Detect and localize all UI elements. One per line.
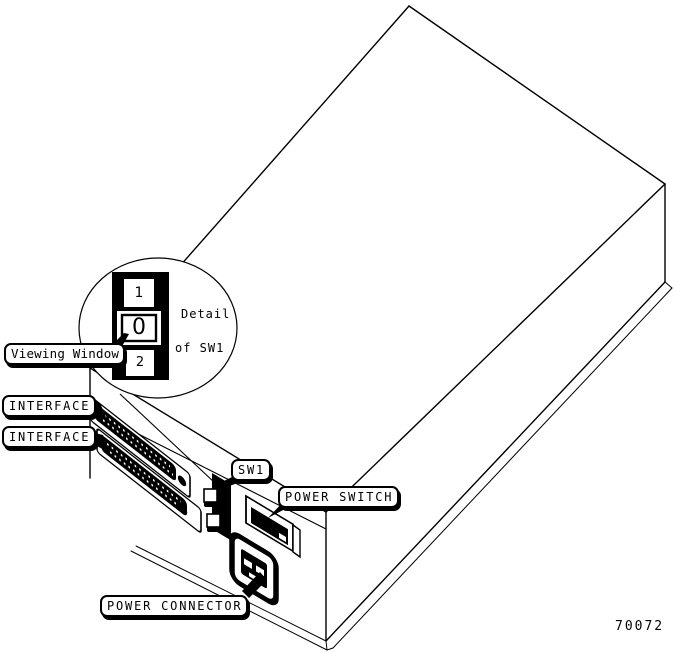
sw1-key-top [204,489,222,507]
edge-near-top-right [326,184,665,512]
callout-viewing-window: Viewing Window [4,343,125,365]
detail-position-2-digit: 2 [126,350,154,376]
figure-number: 70072 [615,619,664,634]
sw1-detail-inset [79,258,237,398]
callout-interface-bottom: INTERFACE [2,426,96,448]
sw1-key-bottom [207,514,225,532]
power-switch-side [293,525,300,557]
edge-bottom-right [326,282,665,641]
detail-caption-line-1: Detail [181,307,230,322]
hardware-rear-view-figure: Viewing Window INTERFACE INTERFACE SW1 P… [0,0,675,653]
rim-right-stub [665,282,672,288]
detail-caption-line-2: of SW1 [175,341,224,356]
line-art [0,0,675,653]
callout-power-switch: POWER SWITCH [278,486,399,508]
callout-interface-top: INTERFACE [2,395,96,417]
detail-position-1-digit: 1 [124,279,154,307]
callout-power-connector: POWER CONNECTOR [100,595,248,617]
detail-position-0-digit: 0 [122,315,156,341]
edge-top-right [409,6,665,184]
rim-corner-join [327,648,333,650]
rim-corner-stub [326,641,327,650]
callout-sw1: SW1 [231,459,271,481]
